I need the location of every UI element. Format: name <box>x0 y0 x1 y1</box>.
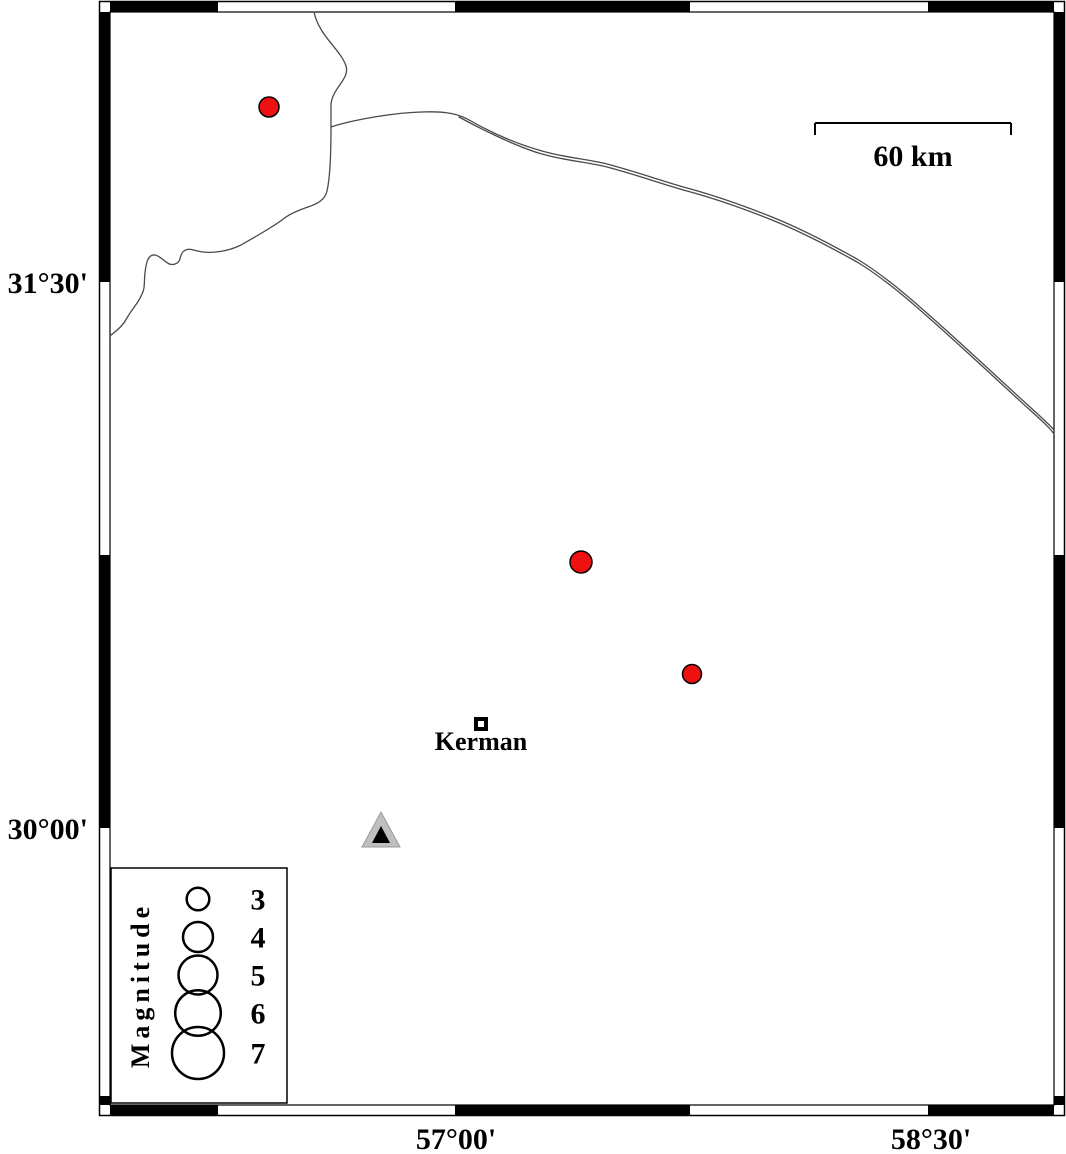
legend-magnitude-value: 6 <box>251 998 266 1031</box>
map-canvas: 31°30' 30°00' 57°00' 58°30' 60 km Kerman… <box>0 0 1066 1154</box>
border-band-segment <box>100 1096 111 1105</box>
border-band-segment <box>1054 555 1065 828</box>
legend-magnitude-value: 3 <box>251 884 266 917</box>
latitude-label-31-30: 31°30' <box>8 267 88 300</box>
border-band-segment <box>455 1105 690 1116</box>
scale-bar-bracket-icon <box>815 123 1011 135</box>
border-band-segment <box>110 1105 218 1116</box>
latitude-label-30-00: 30°00' <box>8 813 88 846</box>
border-band-segment <box>455 2 690 13</box>
border-band-segment <box>1054 12 1065 282</box>
roads-layer <box>110 12 1054 434</box>
scale-bar: 60 km <box>815 123 1011 173</box>
city-label-kerman: Kerman <box>435 727 528 756</box>
longitude-label-58-30: 58°30' <box>891 1123 971 1154</box>
road-line <box>459 117 1054 434</box>
road-line <box>110 12 347 336</box>
magnitude-legend: Magnitude 34567 <box>111 868 287 1103</box>
legend-magnitude-value: 4 <box>251 922 266 955</box>
border-band-segment <box>100 555 111 828</box>
longitude-label-57-00: 57°00' <box>416 1123 496 1154</box>
map-figure: 31°30' 30°00' 57°00' 58°30' 60 km Kerman… <box>0 0 1066 1154</box>
legend-title: Magnitude <box>126 902 155 1068</box>
earthquake-marker <box>259 97 279 117</box>
legend-magnitude-value: 7 <box>251 1038 266 1071</box>
border-band-segment <box>110 2 218 13</box>
scale-bar-label: 60 km <box>873 140 952 173</box>
border-band-segment <box>100 12 111 282</box>
earthquake-marker <box>570 551 592 573</box>
legend-magnitude-value: 5 <box>251 960 266 993</box>
earthquake-marker <box>683 665 702 684</box>
border-band-segment <box>928 2 1054 13</box>
border-band-segment <box>928 1105 1054 1116</box>
border-band-segment <box>1054 1096 1065 1105</box>
